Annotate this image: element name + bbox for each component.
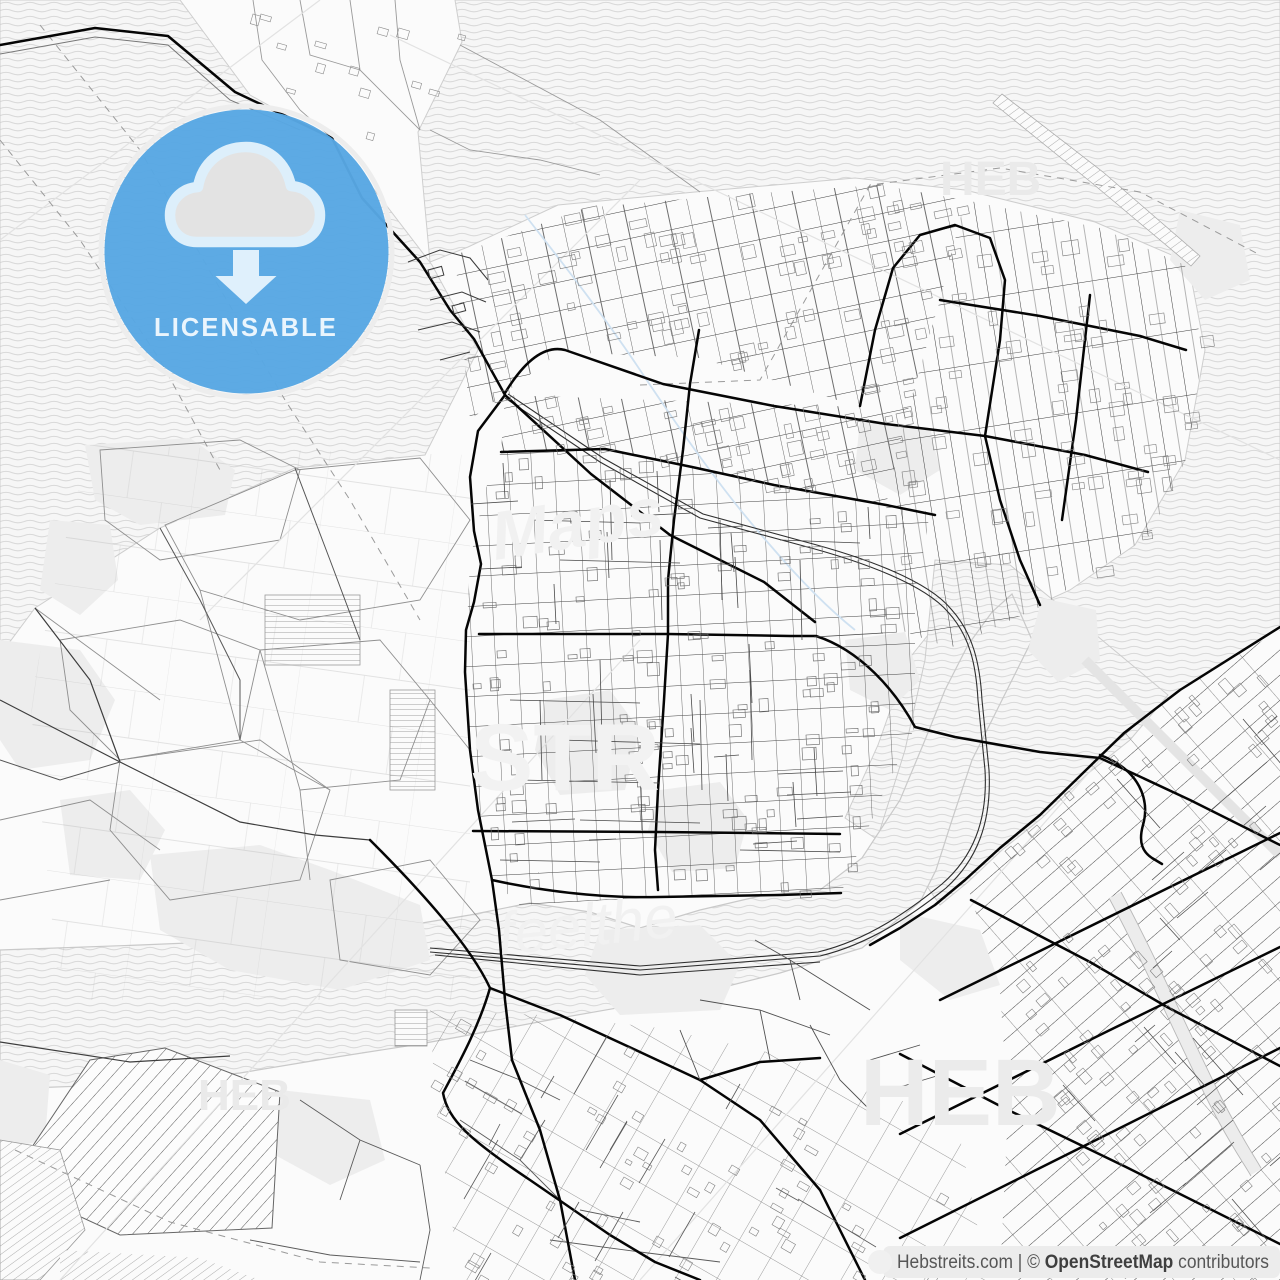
svg-text:STR: STR [470, 705, 660, 811]
svg-text:Hebstreits.com | © OpenStreetM: Hebstreits.com | © OpenStreetMap contrib… [897, 1252, 1269, 1273]
svg-text:LICENSABLE: LICENSABLE [154, 314, 338, 342]
svg-text:HEB: HEB [198, 1071, 291, 1120]
svg-text:HEB: HEB [940, 153, 1041, 206]
svg-text:HEB: HEB [860, 1040, 1061, 1146]
